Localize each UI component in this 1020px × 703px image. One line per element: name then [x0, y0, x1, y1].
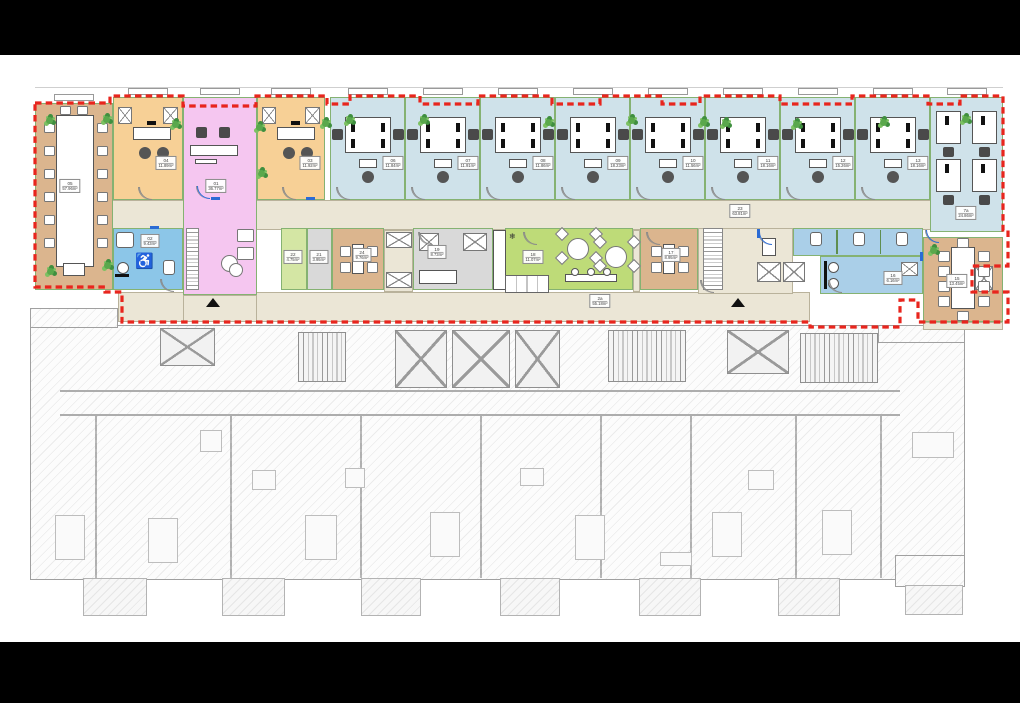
room-17-label: 178.95m² [661, 248, 680, 262]
balcony [361, 578, 421, 616]
plant-icon [545, 119, 552, 126]
office-chair [979, 195, 990, 205]
window [873, 88, 913, 95]
side-table [734, 159, 752, 168]
room-04-label: 0411.89m² [155, 156, 176, 170]
monitor [351, 123, 355, 132]
room-area: 18.23m² [610, 164, 625, 169]
task-chair [512, 171, 524, 183]
apartment-divider-wall [480, 416, 482, 578]
room-area: 4.75m² [286, 258, 299, 263]
office-elevator-box [386, 232, 412, 248]
office-chair [943, 195, 954, 205]
plant-icon [172, 121, 179, 128]
reception-desk [190, 145, 238, 156]
conference-chair [44, 169, 55, 179]
bar-stool [587, 268, 595, 276]
side-table [509, 159, 527, 168]
toilet [853, 232, 865, 246]
office-chair [782, 129, 793, 140]
room-11-label: 1118.16m² [757, 156, 778, 170]
office-corridor-5 [183, 295, 257, 322]
guest-chair [139, 147, 151, 159]
stall-divider [836, 230, 837, 254]
conference-chair [44, 215, 55, 225]
plant-icon [930, 247, 937, 254]
plant-icon [962, 116, 969, 123]
office-chair [943, 147, 954, 157]
room-area: 3.95m² [312, 258, 325, 263]
apartment-divider-wall [360, 416, 362, 578]
room-area: 8.73m² [430, 253, 443, 258]
room-02-label: 029.43m² [140, 234, 159, 248]
storage-shelf [419, 270, 457, 284]
meeting-chair [367, 262, 378, 273]
washbasin [828, 262, 839, 273]
room-16-label: 166.16m² [883, 271, 902, 285]
monitor [756, 139, 760, 148]
office-chair [979, 147, 990, 157]
stall-divider [880, 230, 881, 254]
room-area: 24.86m² [958, 214, 973, 219]
side-table [809, 159, 827, 168]
monitor [381, 139, 385, 148]
furniture-outline [575, 515, 605, 560]
office-elevator-box [757, 262, 781, 282]
room-area: 36.77m² [208, 187, 223, 192]
balcony [500, 578, 560, 616]
room-area: 11.07m² [525, 258, 540, 263]
monitor [876, 123, 880, 132]
plant-icon [46, 117, 53, 124]
meeting-chair [938, 296, 950, 307]
plant-icon [880, 119, 887, 126]
door-accent [150, 226, 159, 229]
office-chair [768, 129, 779, 140]
room-24-label: 249.76m² [352, 248, 371, 262]
task-chair [887, 171, 899, 183]
plant-icon [322, 120, 329, 127]
monitor [906, 123, 910, 132]
office-chair [857, 129, 868, 140]
balcony [778, 578, 840, 616]
task-chair [737, 171, 749, 183]
office-chair [393, 129, 404, 140]
room-area: 9.43m² [143, 242, 156, 247]
basin-counter [115, 274, 129, 277]
window [200, 88, 240, 95]
conference-chair [60, 106, 71, 115]
balcony [905, 585, 963, 615]
room-13-label: 1318.16m² [907, 156, 928, 170]
room-21-label: 213.95m² [309, 250, 328, 264]
furniture-outline [148, 518, 178, 563]
office-chair [482, 129, 493, 140]
monitor [456, 139, 460, 148]
plant-icon [47, 268, 54, 275]
apartment-divider-wall [880, 416, 882, 578]
room-18-label: 1811.07m² [522, 250, 543, 264]
door-accent [757, 229, 760, 238]
monitor [876, 139, 880, 148]
lounge-chair [237, 247, 254, 260]
balcony [222, 578, 285, 616]
conference-chair [97, 215, 108, 225]
room-7a-label: 7a24.86m² [955, 206, 976, 220]
furniture-outline [345, 468, 365, 488]
furniture-outline [748, 470, 774, 490]
office-stairs [186, 228, 199, 290]
plant-icon [104, 262, 111, 269]
room-area: 9.76m² [355, 256, 368, 261]
toilet [163, 260, 175, 275]
window [648, 88, 688, 95]
conference-chair [44, 238, 55, 248]
letterbox-top [0, 0, 1020, 55]
room-07-label: 0711.91m² [457, 156, 478, 170]
monitor [831, 139, 835, 148]
window [798, 88, 838, 95]
basin-counter [824, 261, 827, 289]
floor-plan-canvas: 23 63.81m² 2a 55.18m² 0557.96m²0411.89m²… [0, 0, 1020, 703]
meeting-chair [340, 262, 351, 273]
monitor [726, 139, 730, 148]
meeting-chair [978, 281, 990, 292]
lower-floor-step-0 [30, 308, 118, 328]
room-area: 8.95m² [664, 256, 677, 261]
furniture-outline [822, 510, 852, 555]
window [498, 88, 538, 95]
window [128, 88, 168, 95]
office-chair [407, 129, 418, 140]
stairwell [608, 330, 686, 382]
office-chair [618, 129, 629, 140]
room-area: 11.92m² [302, 164, 317, 169]
door-accent [920, 252, 923, 261]
meeting-chair [678, 262, 689, 273]
guest-chair [283, 147, 295, 159]
furniture-outline [712, 512, 742, 557]
room-05-label: 0557.96m² [59, 179, 80, 193]
monitor [906, 139, 910, 148]
stairwell [800, 333, 878, 383]
monitor [651, 139, 655, 148]
meeting-chair [957, 238, 969, 248]
room-19-label: 198.73m² [427, 245, 446, 259]
meeting-chair [978, 266, 990, 277]
office-chair [918, 129, 929, 140]
conference-chair [44, 192, 55, 202]
monitor [381, 123, 385, 132]
duct-shaft [901, 262, 918, 276]
wheelchair-symbol: ♿ [135, 252, 154, 270]
lower-corridor-wall-0 [60, 390, 900, 392]
window [54, 94, 94, 101]
conference-chair [44, 146, 55, 156]
office-chair [693, 129, 704, 140]
monitor [501, 123, 505, 132]
washbasin [117, 262, 129, 274]
closet [305, 107, 320, 124]
side-table [584, 159, 602, 168]
monitor [981, 116, 985, 125]
room-03-label: 0311.92m² [299, 156, 320, 170]
window [271, 88, 311, 95]
round-table [567, 238, 589, 260]
window [723, 88, 763, 95]
storage-closet [463, 233, 487, 251]
office-chair [468, 129, 479, 140]
plant-icon [103, 116, 110, 123]
shower-tray [116, 232, 134, 248]
office-chair [843, 129, 854, 140]
balcony [639, 578, 701, 616]
task-chair [812, 171, 824, 183]
monitor [606, 123, 610, 132]
plant-icon [256, 124, 263, 131]
conference-chair [44, 123, 55, 133]
round-table [605, 246, 627, 268]
window [573, 88, 613, 95]
door-accent [306, 197, 315, 200]
meeting-chair [651, 246, 662, 257]
office-desk [277, 127, 315, 140]
monitor [531, 123, 535, 132]
furniture-outline [912, 432, 954, 458]
reception-shelf [195, 159, 217, 164]
plant-icon [793, 121, 800, 128]
monitor [681, 139, 685, 148]
room-area: 11.89m² [158, 164, 173, 169]
monitor [576, 123, 580, 132]
monitor [801, 139, 805, 148]
room-area: 11.86m² [535, 164, 550, 169]
room-area: 18.16m² [760, 164, 775, 169]
meeting-chair [938, 251, 950, 262]
apartment-divider-wall [95, 416, 97, 578]
plant-icon [722, 120, 729, 127]
monitor [756, 123, 760, 132]
plant-icon [700, 119, 707, 126]
meeting-chair [651, 262, 662, 273]
conference-chair [97, 169, 108, 179]
room-area: 11.91m² [460, 164, 475, 169]
entrance-arrow-icon [206, 298, 220, 307]
reception-chair [196, 127, 207, 138]
conference-chair [97, 192, 108, 202]
meeting-chair [978, 251, 990, 262]
meeting-chair [957, 311, 969, 321]
furniture-outline [252, 470, 276, 490]
task-chair [362, 171, 374, 183]
meeting-chair [340, 246, 351, 257]
conference-chair [97, 238, 108, 248]
corridor-label: 23 63.81m² [729, 204, 750, 218]
conference-chair [97, 146, 108, 156]
monitor [351, 139, 355, 148]
office-chair [332, 129, 343, 140]
office-chair [632, 129, 643, 140]
entrance-arrow-icon [731, 298, 745, 307]
elevator-shaft [160, 328, 215, 366]
plant-icon [346, 117, 353, 124]
bar-stool [571, 268, 579, 276]
window [348, 88, 388, 95]
monitor [831, 123, 835, 132]
elevator-shaft [452, 330, 510, 388]
apartment-divider-wall [230, 416, 232, 578]
monitor [291, 121, 300, 125]
office-corridor-6 [923, 322, 1003, 330]
corridor-area: 63.81m² [732, 212, 747, 217]
office-elevator-box [386, 272, 412, 288]
fridge-symbol: ❄ [509, 232, 516, 241]
monitor [606, 139, 610, 148]
room-10-label: 1011.56m² [682, 156, 703, 170]
side-table [659, 159, 677, 168]
room-08-label: 0811.86m² [532, 156, 553, 170]
letterbox-bottom [0, 642, 1020, 703]
furniture-outline [430, 512, 460, 557]
elevator-shaft [395, 330, 447, 388]
office-desk [133, 127, 171, 140]
apartment-divider-wall [795, 416, 797, 578]
monitor [456, 123, 460, 132]
monitor [576, 139, 580, 148]
furniture-outline [520, 468, 544, 486]
window [423, 88, 463, 95]
furniture-outline [55, 515, 85, 560]
furniture-outline [305, 515, 337, 560]
door-accent [211, 197, 220, 200]
monitor [426, 139, 430, 148]
side-table [884, 159, 902, 168]
room-09-label: 0918.23m² [607, 156, 628, 170]
office-chair [557, 129, 568, 140]
bar-stool [603, 268, 611, 276]
balcony [83, 578, 147, 616]
closet [262, 107, 276, 124]
office-chair [543, 129, 554, 140]
elevator-shaft [727, 330, 789, 374]
lower-corridor-area: 55.18m² [592, 302, 607, 307]
closet [118, 107, 132, 124]
monitor [651, 123, 655, 132]
meeting-chair [978, 296, 990, 307]
lower-corridor-label: 2a 55.18m² [589, 294, 610, 308]
lounge-chair [237, 229, 254, 242]
monitor [681, 123, 685, 132]
monitor [147, 121, 156, 125]
room-06-label: 0611.84m² [382, 156, 403, 170]
furniture-outline [200, 430, 222, 452]
office-elevator-box [783, 262, 805, 282]
task-chair [587, 171, 599, 183]
plant-icon [628, 117, 635, 124]
monitor [501, 139, 505, 148]
room-22-label: 224.75m² [283, 250, 302, 264]
elevator-shaft [515, 330, 560, 388]
room-area: 57.96m² [62, 187, 77, 192]
conference-chair [97, 123, 108, 133]
monitor [981, 164, 985, 173]
room-area: 6.16m² [886, 279, 899, 284]
furniture-outline [660, 552, 692, 566]
room-area: 13.45m² [949, 282, 964, 287]
monitor [945, 116, 949, 125]
room-area: 18.16m² [910, 164, 925, 169]
monitor [945, 164, 949, 173]
room-area: 11.84m² [385, 164, 400, 169]
presentation-screen [63, 263, 85, 276]
room-area: 11.56m² [685, 164, 700, 169]
monitor [531, 139, 535, 148]
toilet [810, 232, 822, 246]
conference-chair [77, 106, 88, 115]
kitchen-counter [505, 275, 549, 293]
plant-icon [420, 117, 427, 124]
task-chair [662, 171, 674, 183]
side-table [434, 159, 452, 168]
stairwell [298, 332, 346, 382]
window [947, 88, 987, 95]
lower-floor-right-wing [895, 555, 965, 587]
coffee-table [229, 263, 243, 277]
side-table [359, 159, 377, 168]
office-chair [707, 129, 718, 140]
task-chair [437, 171, 449, 183]
toilet [896, 232, 908, 246]
monitor [426, 123, 430, 132]
room-01-label: 0136.77m² [205, 179, 226, 193]
plant-icon [258, 170, 265, 177]
room-15-label: 1513.45m² [946, 274, 967, 288]
monitor [801, 123, 805, 132]
reception-chair [219, 127, 230, 138]
room-12-label: 1215.26m² [832, 156, 853, 170]
room-area: 15.26m² [835, 164, 850, 169]
